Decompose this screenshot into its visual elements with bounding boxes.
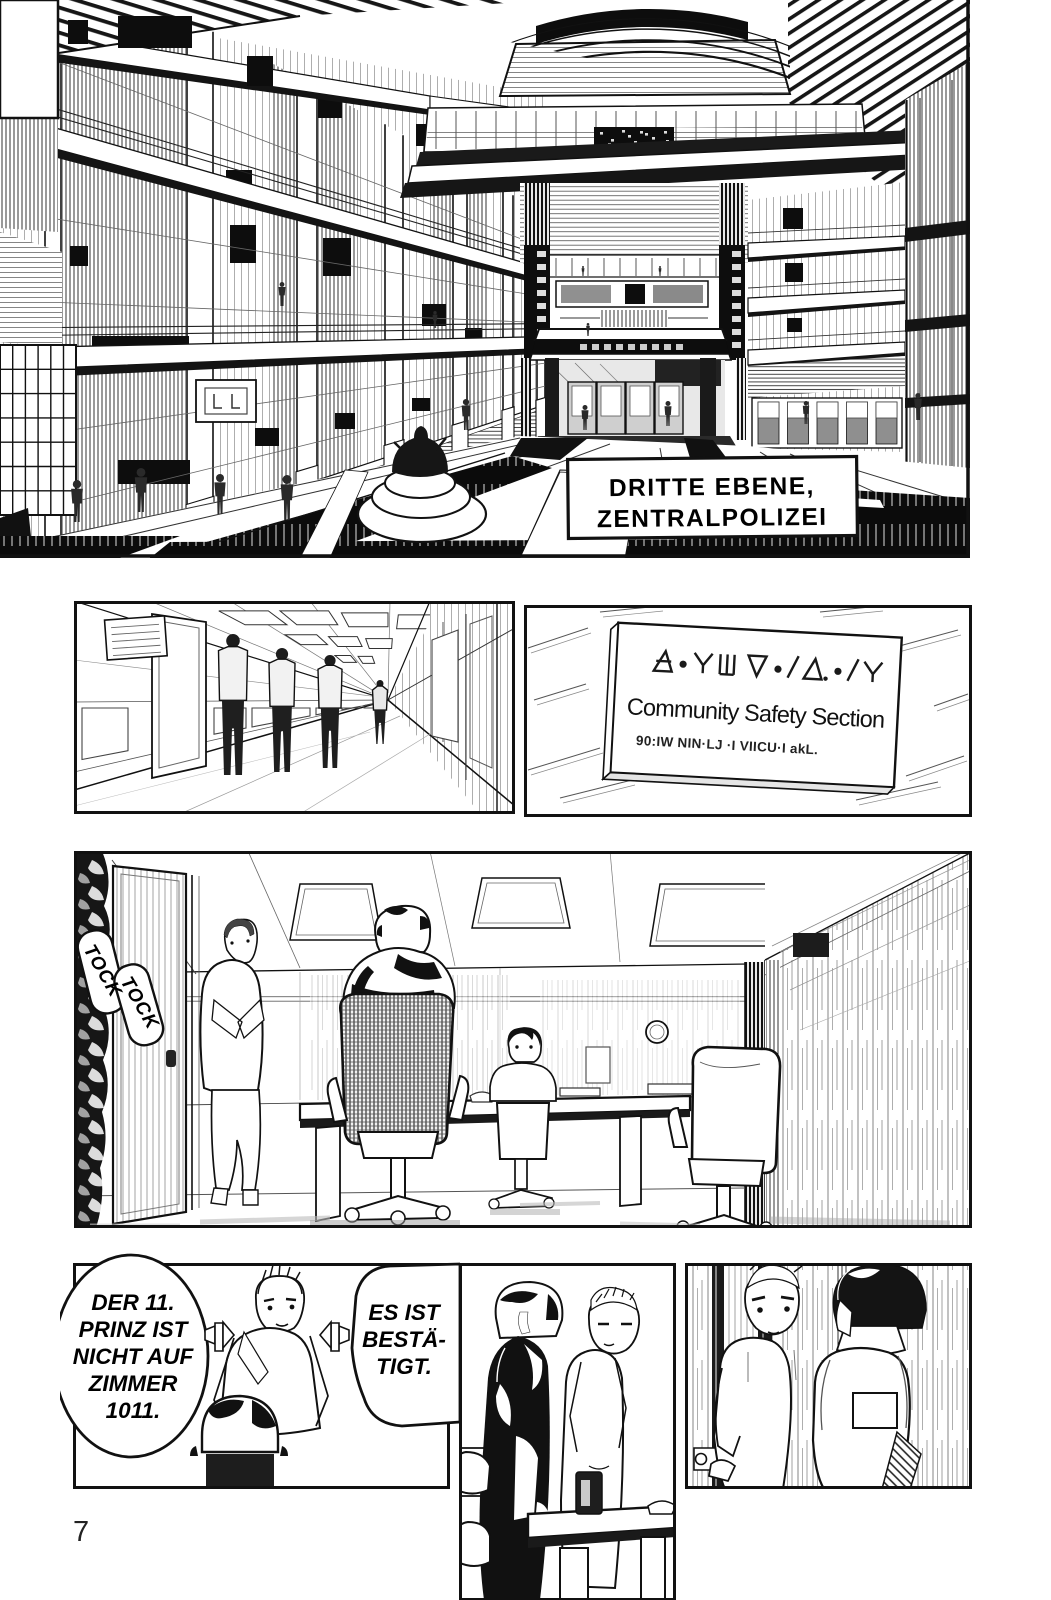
svg-text:ZIMMER: ZIMMER xyxy=(88,1371,178,1396)
svg-text:PRINZ IST: PRINZ IST xyxy=(79,1317,190,1342)
svg-text:DER 11.: DER 11. xyxy=(91,1290,174,1315)
svg-text:1011.: 1011. xyxy=(106,1398,161,1423)
svg-text:TIGT.: TIGT. xyxy=(376,1354,432,1379)
svg-text:BESTÄ-: BESTÄ- xyxy=(362,1327,446,1352)
svg-text:NICHT AUF: NICHT AUF xyxy=(73,1344,195,1369)
svg-text:7: 7 xyxy=(73,1516,89,1548)
svg-text:ZENTRALPOLIZEI: ZENTRALPOLIZEI xyxy=(597,504,828,533)
svg-text:ES IST: ES IST xyxy=(368,1300,442,1325)
svg-text:DRITTE EBENE,: DRITTE EBENE, xyxy=(609,473,815,502)
